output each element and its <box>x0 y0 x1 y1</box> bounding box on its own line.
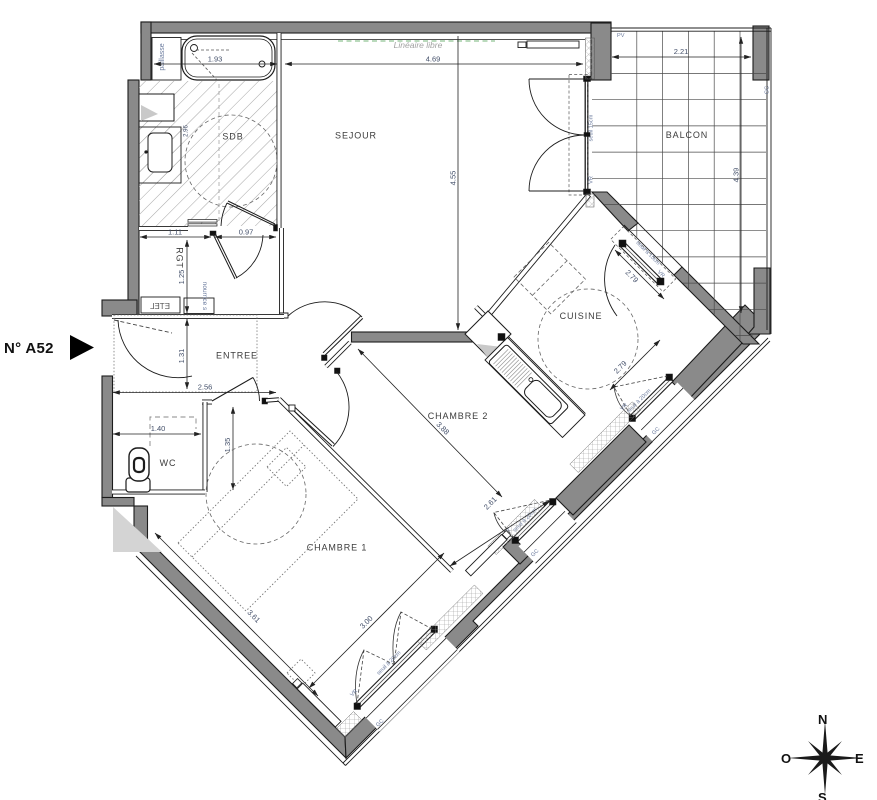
svg-text:Linéaire libre: Linéaire libre <box>394 40 443 50</box>
svg-text:ENTREE: ENTREE <box>216 351 258 361</box>
svg-text:SEJOUR: SEJOUR <box>335 131 377 141</box>
svg-text:CHAMBRE 1: CHAMBRE 1 <box>307 543 368 553</box>
svg-text:O: O <box>781 751 791 766</box>
svg-text:1.40: 1.40 <box>151 424 166 433</box>
svg-text:PV: PV <box>617 33 625 39</box>
svg-text:2.56: 2.56 <box>198 383 213 392</box>
svg-text:WC: WC <box>160 458 177 468</box>
svg-text:2.21: 2.21 <box>674 47 689 56</box>
svg-text:GC: GC <box>765 86 771 94</box>
svg-text:nourrice s: nourrice s <box>201 282 208 311</box>
svg-text:4.39: 4.39 <box>732 168 741 183</box>
svg-text:paillasse: paillasse <box>159 43 166 70</box>
svg-text:1.31: 1.31 <box>177 349 186 364</box>
svg-text:1.35: 1.35 <box>223 438 232 453</box>
svg-text:E: E <box>855 751 864 766</box>
svg-text:1.11: 1.11 <box>168 228 182 237</box>
svg-text:BALCON: BALCON <box>666 130 708 140</box>
svg-text:S: S <box>818 790 827 800</box>
svg-text:RGT: RGT <box>175 247 185 268</box>
svg-text:CHAMBRE 2: CHAMBRE 2 <box>428 411 489 421</box>
svg-text:1.25: 1.25 <box>177 270 186 285</box>
svg-text:ETEL: ETEL <box>149 302 170 311</box>
svg-text:CUISINE: CUISINE <box>560 311 603 321</box>
svg-text:1.93: 1.93 <box>208 55 223 64</box>
svg-text:2.96: 2.96 <box>184 125 190 137</box>
svg-text:SDB: SDB <box>222 132 243 142</box>
svg-text:4.69: 4.69 <box>426 55 441 64</box>
svg-text:VR: VR <box>589 176 595 184</box>
svg-text:4.55: 4.55 <box>449 171 458 186</box>
svg-text:N° A52: N° A52 <box>4 340 54 357</box>
svg-text:N: N <box>818 712 827 727</box>
svg-text:seuil 15cm: seuil 15cm <box>589 114 595 141</box>
svg-text:0.97: 0.97 <box>239 228 254 237</box>
